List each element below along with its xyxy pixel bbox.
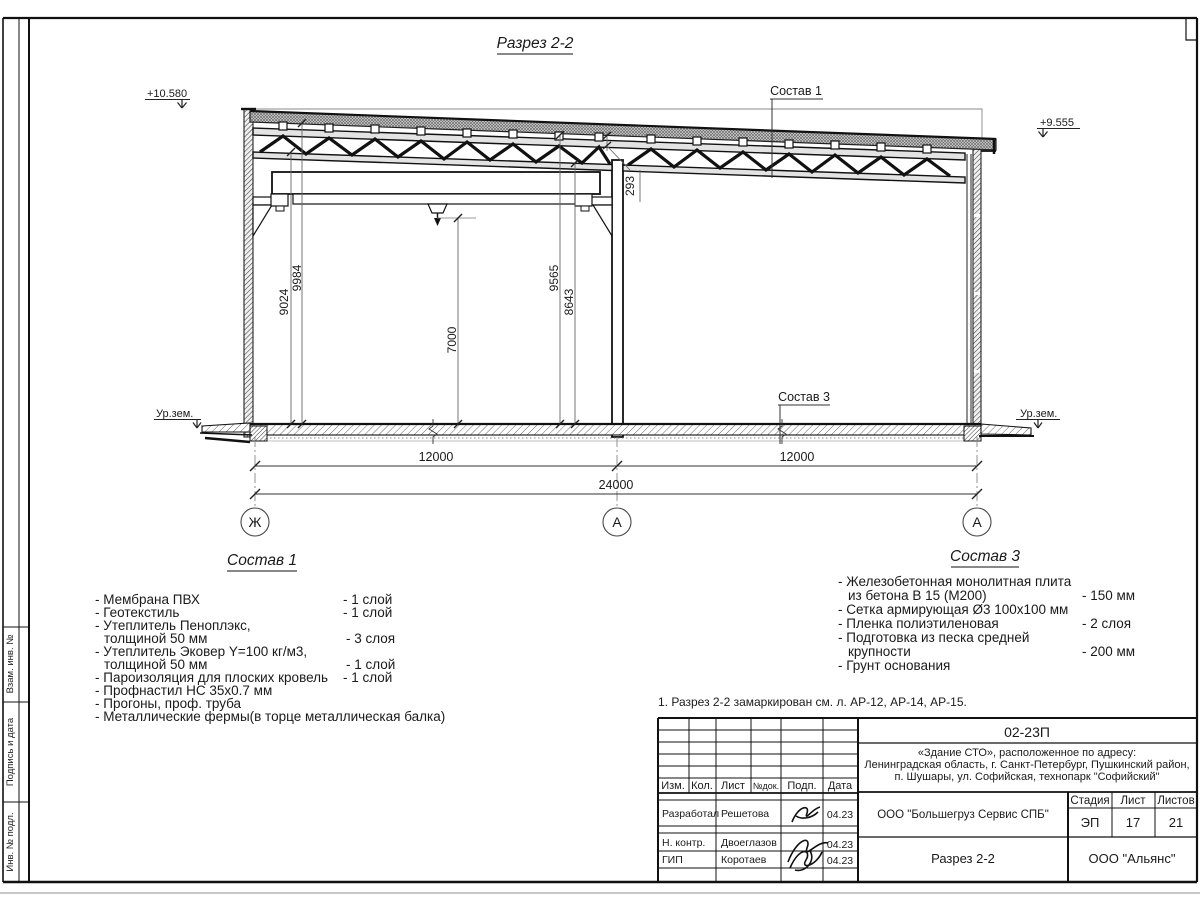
ground-left-label: Ур.зем.: [156, 408, 193, 420]
tb-sheets-label: Листов: [1157, 795, 1194, 807]
tb-col-izm: Изм.: [661, 780, 685, 792]
tb-sheet-value: 17: [1126, 815, 1140, 830]
tb-role: Разработал: [662, 808, 719, 820]
tb-drawing-title: Разрез 2-2: [931, 851, 995, 866]
right-wall: [967, 142, 985, 437]
drawing-sheet: Взам. инв. № Подпись и дата Инв. № подл.…: [0, 0, 1200, 900]
elevation-right: +9.555: [1037, 117, 1080, 137]
svg-text:А: А: [972, 514, 982, 530]
corner-box: [1186, 18, 1197, 40]
list-value: - 200 мм: [1082, 644, 1135, 659]
foundation-left: [250, 426, 267, 441]
section-drawing: Взам. инв. № Подпись и дата Инв. № подл.…: [0, 0, 1200, 900]
tb-sheets-value: 21: [1169, 815, 1183, 830]
tb-role: ГИП: [662, 854, 683, 866]
signature: [788, 840, 828, 870]
callout-roof-label: Состав 1: [770, 84, 822, 98]
callout-sostav3: Состав 3: [778, 390, 830, 444]
hoist-hook: [428, 204, 447, 226]
tb-company: ООО "Большегруз Сервис СПБ": [877, 809, 1049, 821]
tb-object-line1: «Здание СТО», расположенное по адресу:: [918, 747, 1136, 759]
tb-date: 04.23: [827, 839, 853, 851]
edge-label-inv: Инв. № подл.: [5, 812, 16, 871]
view-title: Разрез 2-2: [497, 35, 574, 54]
tb-stage-value: ЭП: [1081, 815, 1100, 830]
dim-8643: 8643: [562, 288, 576, 315]
svg-text:Ж: Ж: [249, 514, 262, 530]
list-value: - 3 слоя: [346, 631, 395, 646]
list-item: из бетона В 15 (М200): [848, 588, 987, 603]
tb-name: Решетова: [721, 808, 769, 820]
apron-left: [200, 423, 252, 442]
tb-doc-number: 02-23П: [1004, 724, 1050, 740]
dim-bay-right: 12000: [780, 450, 815, 464]
tb-sheet-label: Лист: [1121, 795, 1147, 807]
list-item: - Железобетонная монолитная плита: [838, 574, 1072, 589]
list-item: - Подготовка из песка средней: [838, 630, 1029, 645]
section-title: Разрез 2-2: [497, 35, 574, 52]
list-item: - Пленка полиэтиленовая: [838, 616, 999, 631]
ground-level-left: Ур.зем.: [154, 408, 201, 428]
section-view: [200, 109, 1034, 444]
dim-293: 293: [623, 176, 637, 196]
sostav1-heading: Состав 1: [227, 552, 297, 569]
apron-right: [979, 424, 1034, 436]
dim-total: 24000: [599, 478, 634, 492]
tb-date: 04.23: [827, 809, 853, 821]
tb-stage-label: Стадия: [1070, 795, 1109, 807]
list-value: - 2 слоя: [1082, 616, 1131, 631]
crane-beam: [271, 172, 600, 226]
elevation-right-value: +9.555: [1040, 117, 1074, 129]
elevation-left-value: +10.580: [147, 88, 187, 100]
dim-9565: 9565: [547, 264, 561, 291]
dim-bay-left: 12000: [419, 450, 454, 464]
axis-bubble-right: А: [963, 508, 991, 536]
title-block: Изм. Кол. Лист №док. Подп. Дата Разработ…: [658, 718, 1197, 882]
callout-floor-label: Состав 3: [778, 390, 830, 404]
list-item: - Сетка армирующая Ø3 100х100 мм: [838, 602, 1068, 617]
sostav3-block: Состав 3 - Железобетонная монолитная пли…: [838, 548, 1135, 673]
sheet-note: 1. Разрез 2-2 замаркирован см. л. АР-12,…: [658, 695, 967, 709]
list-value: - 1 слой: [343, 670, 392, 685]
signature: [792, 807, 820, 822]
tb-col-list: Лист: [721, 780, 745, 792]
tb-org: ООО "Альянс": [1089, 851, 1176, 866]
tb-role: Н. контр.: [662, 837, 705, 849]
axis-bubble-left: Ж: [241, 508, 269, 536]
tb-col-doc: №док.: [753, 781, 779, 791]
sostav3-heading: Состав 3: [950, 548, 1020, 565]
tb-date: 04.23: [827, 855, 853, 867]
list-item: крупности: [848, 644, 911, 659]
dim-7000: 7000: [445, 326, 459, 353]
tb-name: Коротаев: [721, 854, 767, 866]
ground-right-label: Ур.зем.: [1020, 408, 1057, 420]
tb-object-line2: Ленинградская область, г. Санкт-Петербур…: [864, 759, 1189, 771]
dim-9984: 9984: [290, 264, 304, 291]
list-item: - Грунт основания: [838, 658, 950, 673]
edge-label-podpis: Подпись и дата: [5, 717, 16, 786]
foundation-right: [964, 426, 981, 441]
list-value: - 1 слой: [343, 605, 392, 620]
list-value: - 150 мм: [1082, 588, 1135, 603]
edge-label-vzam: Взам. инв. №: [5, 635, 16, 694]
middle-column: [612, 160, 623, 437]
svg-text:А: А: [612, 514, 622, 530]
ground-level-right: Ур.зем.: [1016, 408, 1060, 428]
list-item: - Металлические фермы(в торце металличес…: [95, 709, 445, 724]
tb-col-podp: Подп.: [787, 780, 816, 792]
tb-object-line3: п. Шушары, ул. Софийская, технопарк "Соф…: [894, 771, 1159, 783]
dim-9024: 9024: [277, 288, 291, 315]
sostav1-block: Состав 1 - Мембрана ПВХ - 1 слой - Геоте…: [95, 552, 445, 724]
axis-bubble-middle: А: [603, 508, 631, 536]
tb-name: Двоеглазов: [721, 837, 777, 849]
elevation-left: +10.580: [145, 88, 190, 108]
tb-col-kol: Кол.: [691, 780, 713, 792]
tb-col-data: Дата: [828, 780, 853, 792]
